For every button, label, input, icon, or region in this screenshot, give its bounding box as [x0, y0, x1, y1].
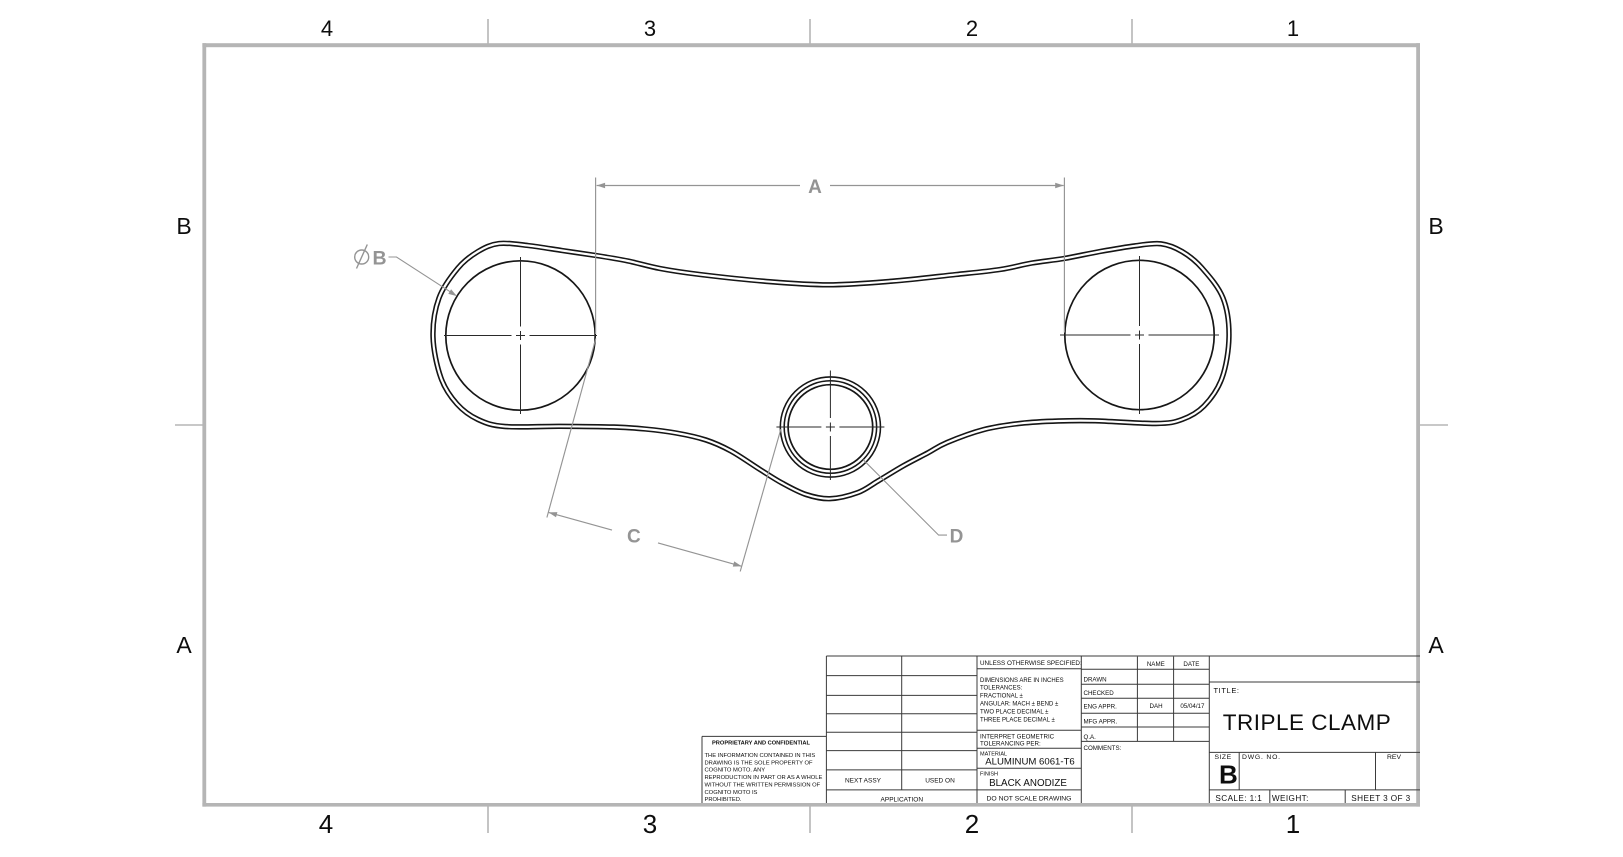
- svg-text:TWO PLACE DECIMAL ±: TWO PLACE DECIMAL ±: [980, 709, 1049, 715]
- svg-text:THE INFORMATION CONTAINED IN T: THE INFORMATION CONTAINED IN THIS: [705, 753, 816, 759]
- svg-text:TRIPLE CLAMP: TRIPLE CLAMP: [1223, 710, 1392, 735]
- svg-text:2: 2: [965, 809, 979, 839]
- svg-text:REV: REV: [1387, 754, 1401, 761]
- svg-text:DWG. NO.: DWG. NO.: [1242, 754, 1281, 761]
- svg-text:FINISH: FINISH: [980, 772, 998, 778]
- svg-text:DIMENSIONS ARE IN INCHES: DIMENSIONS ARE IN INCHES: [980, 678, 1064, 684]
- svg-text:DATE: DATE: [1183, 661, 1199, 668]
- svg-text:2: 2: [966, 16, 978, 41]
- svg-text:Q.A.: Q.A.: [1084, 734, 1097, 741]
- svg-text:TOLERANCING PER:: TOLERANCING PER:: [980, 741, 1041, 748]
- svg-text:B: B: [176, 213, 191, 239]
- svg-text:ENG APPR.: ENG APPR.: [1084, 704, 1118, 711]
- svg-text:B: B: [372, 248, 386, 270]
- svg-text:WITHOUT THE WRITTEN PERMISSION: WITHOUT THE WRITTEN PERMISSION OF: [705, 782, 821, 788]
- svg-text:APPLICATION: APPLICATION: [881, 797, 924, 804]
- svg-text:1: 1: [1287, 16, 1299, 41]
- svg-text:A: A: [808, 177, 822, 198]
- svg-text:3: 3: [644, 16, 656, 41]
- svg-text:REPRODUCTION IN PART OR AS A W: REPRODUCTION IN PART OR AS A WHOLE: [705, 775, 823, 781]
- svg-text:CHECKED: CHECKED: [1084, 690, 1115, 697]
- svg-text:05/04/17: 05/04/17: [1180, 703, 1205, 710]
- svg-text:3: 3: [643, 809, 657, 839]
- svg-text:ANGULAR: MACH ± BEND ±: ANGULAR: MACH ± BEND ±: [980, 702, 1059, 708]
- svg-text:PROPRIETARY AND CONFIDENTIAL: PROPRIETARY AND CONFIDENTIAL: [712, 741, 810, 747]
- svg-text:DRAWING IS THE SOLE PROPERTY O: DRAWING IS THE SOLE PROPERTY OF: [705, 760, 813, 766]
- svg-text:SHEET 3 OF 3: SHEET 3 OF 3: [1351, 794, 1410, 803]
- svg-text:NEXT ASSY: NEXT ASSY: [845, 778, 882, 785]
- svg-text:NAME: NAME: [1147, 661, 1165, 668]
- svg-text:COGNITO MOTO IS: COGNITO MOTO IS: [705, 790, 758, 796]
- svg-text:C: C: [627, 527, 641, 548]
- svg-text:FRACTIONAL ±: FRACTIONAL ±: [980, 694, 1023, 700]
- svg-text:B: B: [1219, 760, 1238, 790]
- svg-text:A: A: [1428, 632, 1444, 658]
- svg-text:4: 4: [319, 809, 333, 839]
- svg-text:USED ON: USED ON: [925, 778, 955, 785]
- svg-text:B: B: [1428, 213, 1443, 239]
- svg-text:WEIGHT:: WEIGHT:: [1272, 794, 1309, 803]
- svg-text:BLACK ANODIZE: BLACK ANODIZE: [989, 778, 1067, 789]
- svg-text:DO NOT SCALE DRAWING: DO NOT SCALE DRAWING: [987, 795, 1072, 802]
- svg-text:D: D: [950, 527, 964, 548]
- svg-text:SCALE: 1:1: SCALE: 1:1: [1215, 794, 1262, 803]
- svg-text:COGNITO MOTO. ANY: COGNITO MOTO. ANY: [705, 768, 766, 774]
- svg-text:4: 4: [321, 16, 333, 41]
- svg-text:ALUMINUM 6061-T6: ALUMINUM 6061-T6: [985, 757, 1075, 768]
- svg-text:COMMENTS:: COMMENTS:: [1084, 745, 1122, 752]
- svg-text:A: A: [176, 632, 192, 658]
- svg-text:TITLE:: TITLE:: [1214, 686, 1240, 695]
- svg-text:DAH: DAH: [1150, 703, 1163, 710]
- svg-text:THREE PLACE DECIMAL ±: THREE PLACE DECIMAL ±: [980, 717, 1055, 723]
- svg-text:1: 1: [1286, 809, 1300, 839]
- svg-text:PROHIBITED.: PROHIBITED.: [705, 797, 742, 803]
- svg-text:UNLESS OTHERWISE SPECIFIED:: UNLESS OTHERWISE SPECIFIED:: [980, 660, 1082, 667]
- svg-text:DRAWN: DRAWN: [1084, 677, 1107, 684]
- svg-text:TOLERANCES:: TOLERANCES:: [980, 686, 1023, 692]
- svg-text:MFG APPR.: MFG APPR.: [1084, 718, 1118, 725]
